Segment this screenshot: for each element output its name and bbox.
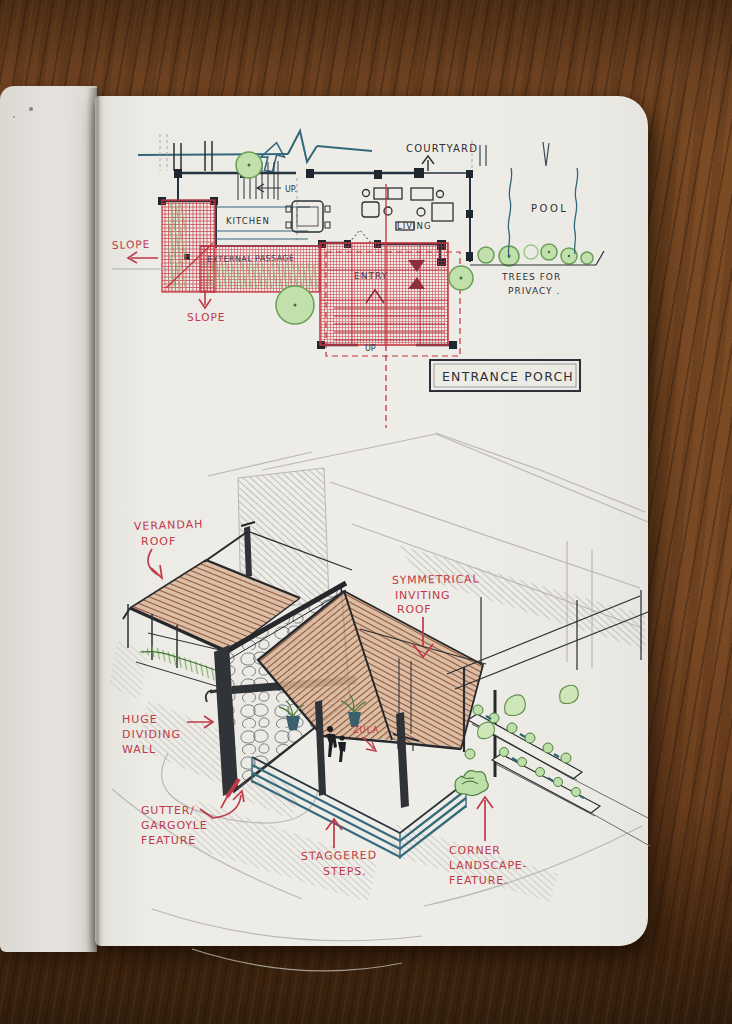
sketchbook-left-page — [0, 86, 97, 952]
sketchbook-photo: COURTYARD POOL KITCHEN LIVING UP. UP ENT… — [0, 0, 732, 1024]
sketchbook-right-page — [95, 96, 648, 946]
sketchbook-spine-crease — [88, 88, 104, 952]
